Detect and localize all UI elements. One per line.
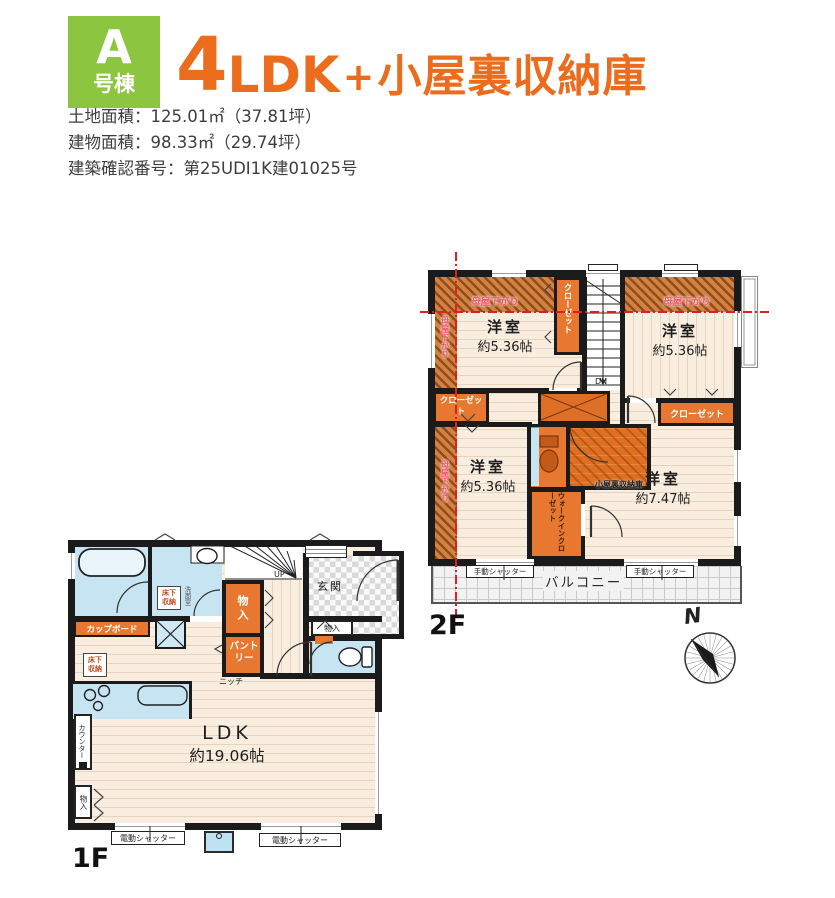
bedroom-sw-size: 約5.36帖 <box>448 476 528 495</box>
floor1-tag: 1F <box>72 843 109 874</box>
washing-machine-x <box>157 621 184 647</box>
storage-1f-label: 物入 <box>234 590 250 628</box>
pantry-label: パントリー <box>229 641 259 665</box>
underfloor-storage-label: 床下収納 <box>157 586 181 610</box>
counter-label: カウンター <box>77 718 87 764</box>
plan-annotations <box>0 0 835 898</box>
stairs-2f <box>587 279 620 385</box>
window-ticks <box>150 566 662 844</box>
niche-label: ニッチ <box>219 676 243 687</box>
up-label: UP <box>274 570 285 579</box>
underfloor-storage-label: 床下収納 <box>83 653 107 677</box>
bedroom-ne-name: 洋室 <box>650 320 710 341</box>
bedroom-nw-name: 洋室 <box>475 316 535 337</box>
attic-label: 小屋裏収納庫 <box>584 479 654 490</box>
balcony-label: バルコニー <box>543 571 624 591</box>
toilet-1f-icon <box>339 647 372 667</box>
bedroom-nw-size: 約5.36帖 <box>465 336 545 355</box>
section-line-horizontal <box>420 311 772 313</box>
floor2-tag: 2F <box>429 610 466 641</box>
door-arcs-2f <box>553 362 655 537</box>
wic-label: ウォークインクローゼット <box>548 492 566 558</box>
cupboard-label: カップボード <box>74 620 150 637</box>
bedroom-se-size: 約7.47帖 <box>623 488 703 507</box>
bedroom-sw-name: 洋室 <box>458 456 518 477</box>
closet-north-label: クローゼット <box>561 283 573 351</box>
closet-east-label: クローゼット <box>660 402 734 424</box>
washroom-sink-icon <box>191 546 224 564</box>
ldk-size: 約19.06帖 <box>182 744 272 766</box>
bathtub-icon <box>79 549 145 576</box>
section-line-vertical <box>455 252 457 618</box>
sloped-ceiling-text: 母屋下がり <box>464 294 526 308</box>
dn-label: DN <box>595 377 619 386</box>
window-bay-inner <box>744 279 755 365</box>
kitchen-sink-icon <box>85 686 188 711</box>
compass <box>685 633 735 683</box>
closet-west-label: クローゼット <box>438 396 484 418</box>
sloped-ceiling-text: 母屋下がり <box>438 316 450 380</box>
sloped-ceiling-text: 母屋下がり <box>656 294 718 308</box>
stairs-1f <box>225 543 302 579</box>
water-heater-dot <box>217 834 222 839</box>
floorplan-flyer: A 号棟 4 LDK + 小屋裏収納庫 土地面積：125.01㎡（37.81坪）… <box>0 0 835 898</box>
ldk-name: LDK <box>187 722 267 744</box>
bedroom-ne-size: 約5.36帖 <box>640 340 720 359</box>
storage-left-label: 物入 <box>78 789 89 815</box>
toilet-2f-icon <box>540 436 558 472</box>
compass-north-label: N <box>682 603 703 629</box>
sloped-ceiling-text: 母屋下がり <box>438 460 450 524</box>
storage-genkan-label: 物入 <box>311 620 353 636</box>
entrance-label: 玄関 <box>317 578 343 594</box>
attic-ladder-marks <box>541 394 606 420</box>
washroom-label: 洗面室 <box>182 586 192 614</box>
